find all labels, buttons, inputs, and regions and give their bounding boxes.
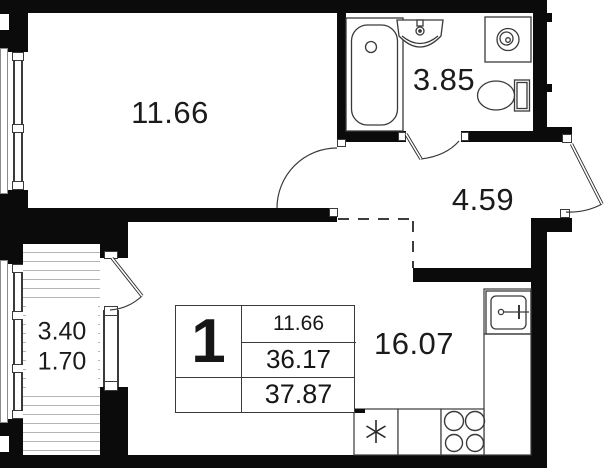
floor-plan: 11.66 3.85 4.59 16.07 3.40 1.70 1 11.66 … xyxy=(0,0,612,468)
bedroom-area-label: 11.66 xyxy=(131,95,209,131)
kitchen-counter-bottom xyxy=(354,409,484,455)
zone-dashed-boundary xyxy=(338,219,413,268)
door-leaf xyxy=(112,134,602,296)
bathroom-area-label: 3.85 xyxy=(413,62,475,98)
legend-living-area: 11.66 xyxy=(241,306,356,342)
washing-machine-icon xyxy=(485,17,531,62)
legend-rooms-count: 1 xyxy=(176,306,241,377)
door-swing-icon xyxy=(110,141,602,310)
legend-area-without-balcony: 36.17 xyxy=(241,342,356,377)
legend-total-area: 37.87 xyxy=(241,377,356,412)
toilet-icon xyxy=(478,80,530,111)
unit-legend-table: 1 11.66 36.17 37.87 xyxy=(175,305,355,413)
balcony-area-reduced-label: 1.70 xyxy=(38,348,87,377)
hallway-area-label: 4.59 xyxy=(452,182,514,218)
bathtub-icon xyxy=(346,18,403,131)
balcony-area-full-label: 3.40 xyxy=(38,318,87,347)
bath-sink-icon xyxy=(397,20,443,47)
kitchen-living-area-label: 16.07 xyxy=(374,326,454,362)
